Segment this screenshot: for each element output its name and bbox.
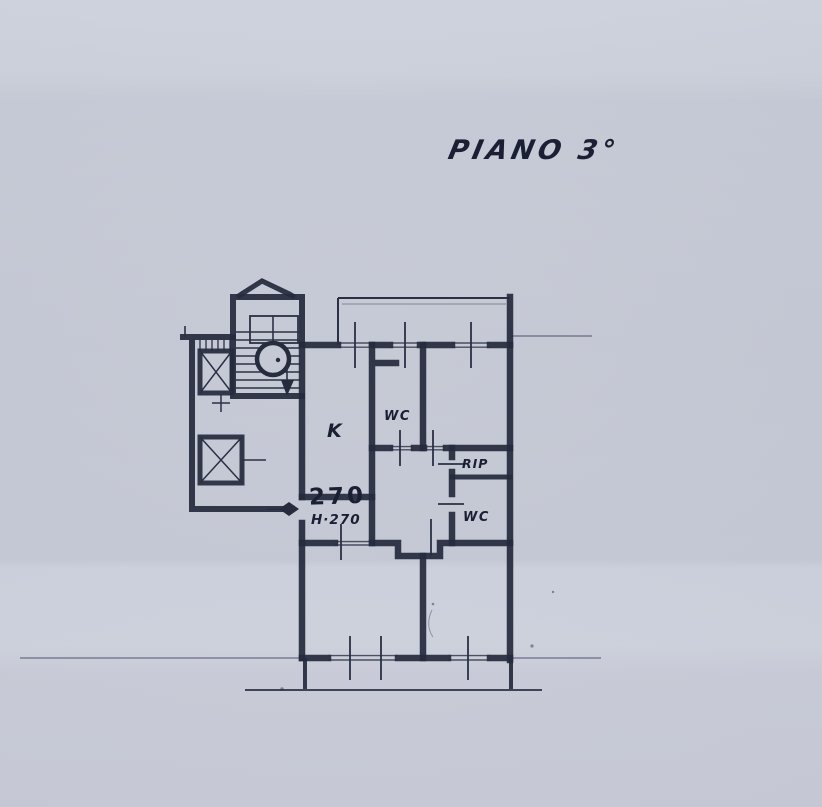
- apartment-walls: [302, 297, 510, 660]
- room-label-kitchen: K: [327, 420, 343, 442]
- entrance-height-note: H·270: [311, 512, 361, 528]
- bottom-balcony: [245, 658, 542, 690]
- entrance-dimension: 270: [309, 483, 367, 511]
- elevator-shaft-lower: [200, 437, 266, 483]
- window-markers: [350, 322, 471, 680]
- room-label-wc-upper: WC: [384, 409, 411, 424]
- scanned-floorplan-page: PIANO 3° K WC RIP WC 270 H·270: [0, 0, 822, 807]
- stair-landing: [250, 316, 298, 343]
- elevator-shaft-upper: [200, 351, 232, 412]
- stair-newel-circle: [257, 343, 289, 375]
- room-label-storage: RIP: [462, 456, 488, 471]
- floorplan-drawing: PIANO 3° K WC RIP WC 270 H·270: [0, 0, 822, 807]
- top-balcony: [338, 298, 510, 345]
- floor-title: PIANO 3°: [446, 135, 622, 166]
- entrance-arrow-icon: [267, 502, 299, 516]
- room-label-wc-lower: WC: [463, 510, 490, 525]
